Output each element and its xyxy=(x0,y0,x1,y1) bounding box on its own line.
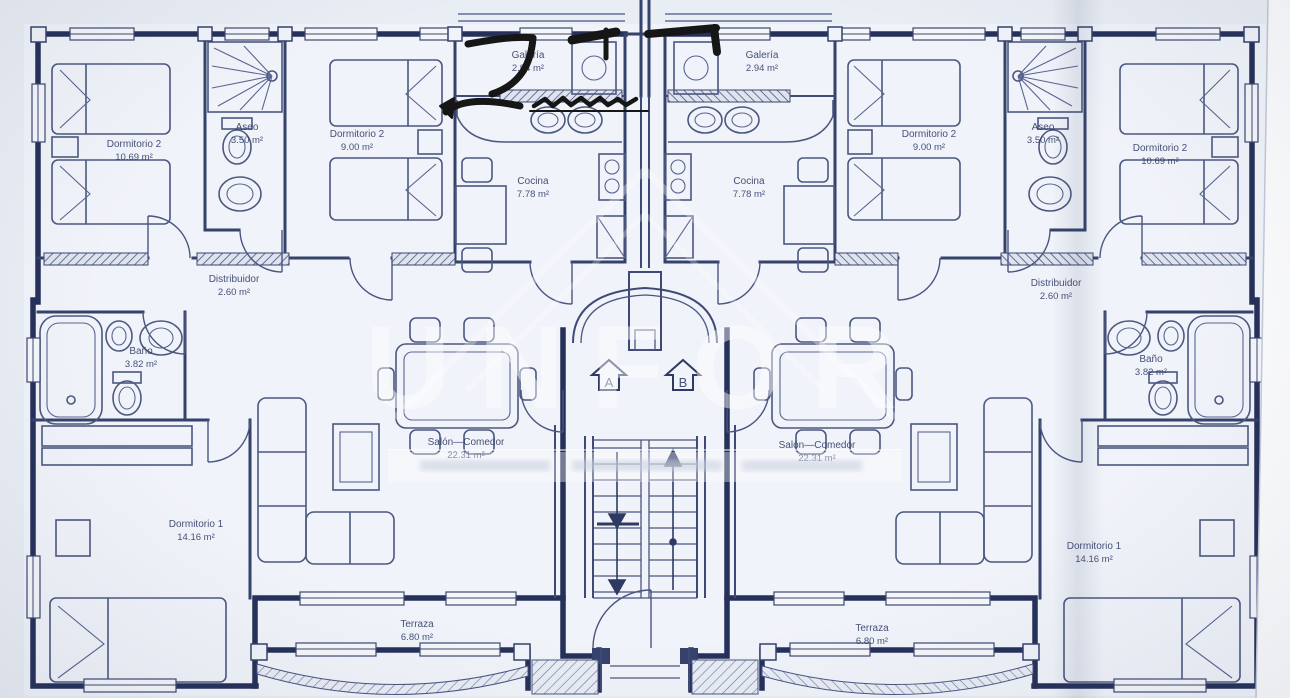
watermark-text: UNFOR xyxy=(365,302,925,434)
floor-plan-scan: A B Galería 2.94 m² Galería 2.94 m² Dorm… xyxy=(0,0,1290,698)
room-area-terraza-left: 6.80 m² xyxy=(401,632,433,643)
room-area-dorm2a-right: 10.69 m² xyxy=(1141,156,1179,167)
room-label-aseo-left: Aseo xyxy=(236,122,259,133)
room-label-terraza-left: Terraza xyxy=(400,619,434,630)
room-label-salon-left: Salón—Comedor xyxy=(428,437,505,448)
room-area-cocina-left: 7.78 m² xyxy=(517,189,549,200)
room-label-terraza-right: Terraza xyxy=(855,623,889,634)
room-label-dorm2a-right: Dormitorio 2 xyxy=(1133,143,1188,154)
room-area-dorm2b-right: 9.00 m² xyxy=(913,142,945,153)
room-label-dorm2b-left: Dormitorio 2 xyxy=(330,129,385,140)
room-area-dorm1-left: 14.16 m² xyxy=(177,532,215,543)
room-area-dorm2b-left: 9.00 m² xyxy=(341,142,373,153)
room-area-dorm2a-left: 10.69 m² xyxy=(115,152,153,163)
room-area-bano-left: 3.82 m² xyxy=(125,359,157,370)
floor-plan-drawing: A B Galería 2.94 m² Galería 2.94 m² Dorm… xyxy=(0,0,1290,698)
room-label-cocina-right: Cocina xyxy=(733,176,765,187)
room-area-cocina-right: 7.78 m² xyxy=(733,189,765,200)
room-label-cocina-left: Cocina xyxy=(517,176,549,187)
room-area-bano-right: 3.82 m² xyxy=(1135,367,1167,378)
room-area-distribuidor-left: 2.60 m² xyxy=(218,287,250,298)
room-label-distribuidor-left: Distribuidor xyxy=(209,274,260,285)
room-label-dorm1-left: Dormitorio 1 xyxy=(169,519,224,530)
room-label-dorm2a-left: Dormitorio 2 xyxy=(107,139,162,150)
watermark-subtext-blur xyxy=(420,460,862,471)
room-label-aseo-right: Aseo xyxy=(1032,122,1055,133)
room-area-terraza-right: 6.80 m² xyxy=(856,636,888,647)
room-label-bano-right: Baño xyxy=(1139,354,1163,365)
scan-fold-shadow xyxy=(1052,0,1104,698)
room-label-bano-left: Baño xyxy=(129,346,153,357)
room-label-dorm2b-right: Dormitorio 2 xyxy=(902,129,957,140)
room-area-aseo-left: 3.50 m² xyxy=(231,135,263,146)
room-label-galeria-right: Galería xyxy=(746,50,779,61)
room-area-galeria-right: 2.94 m² xyxy=(746,63,778,74)
